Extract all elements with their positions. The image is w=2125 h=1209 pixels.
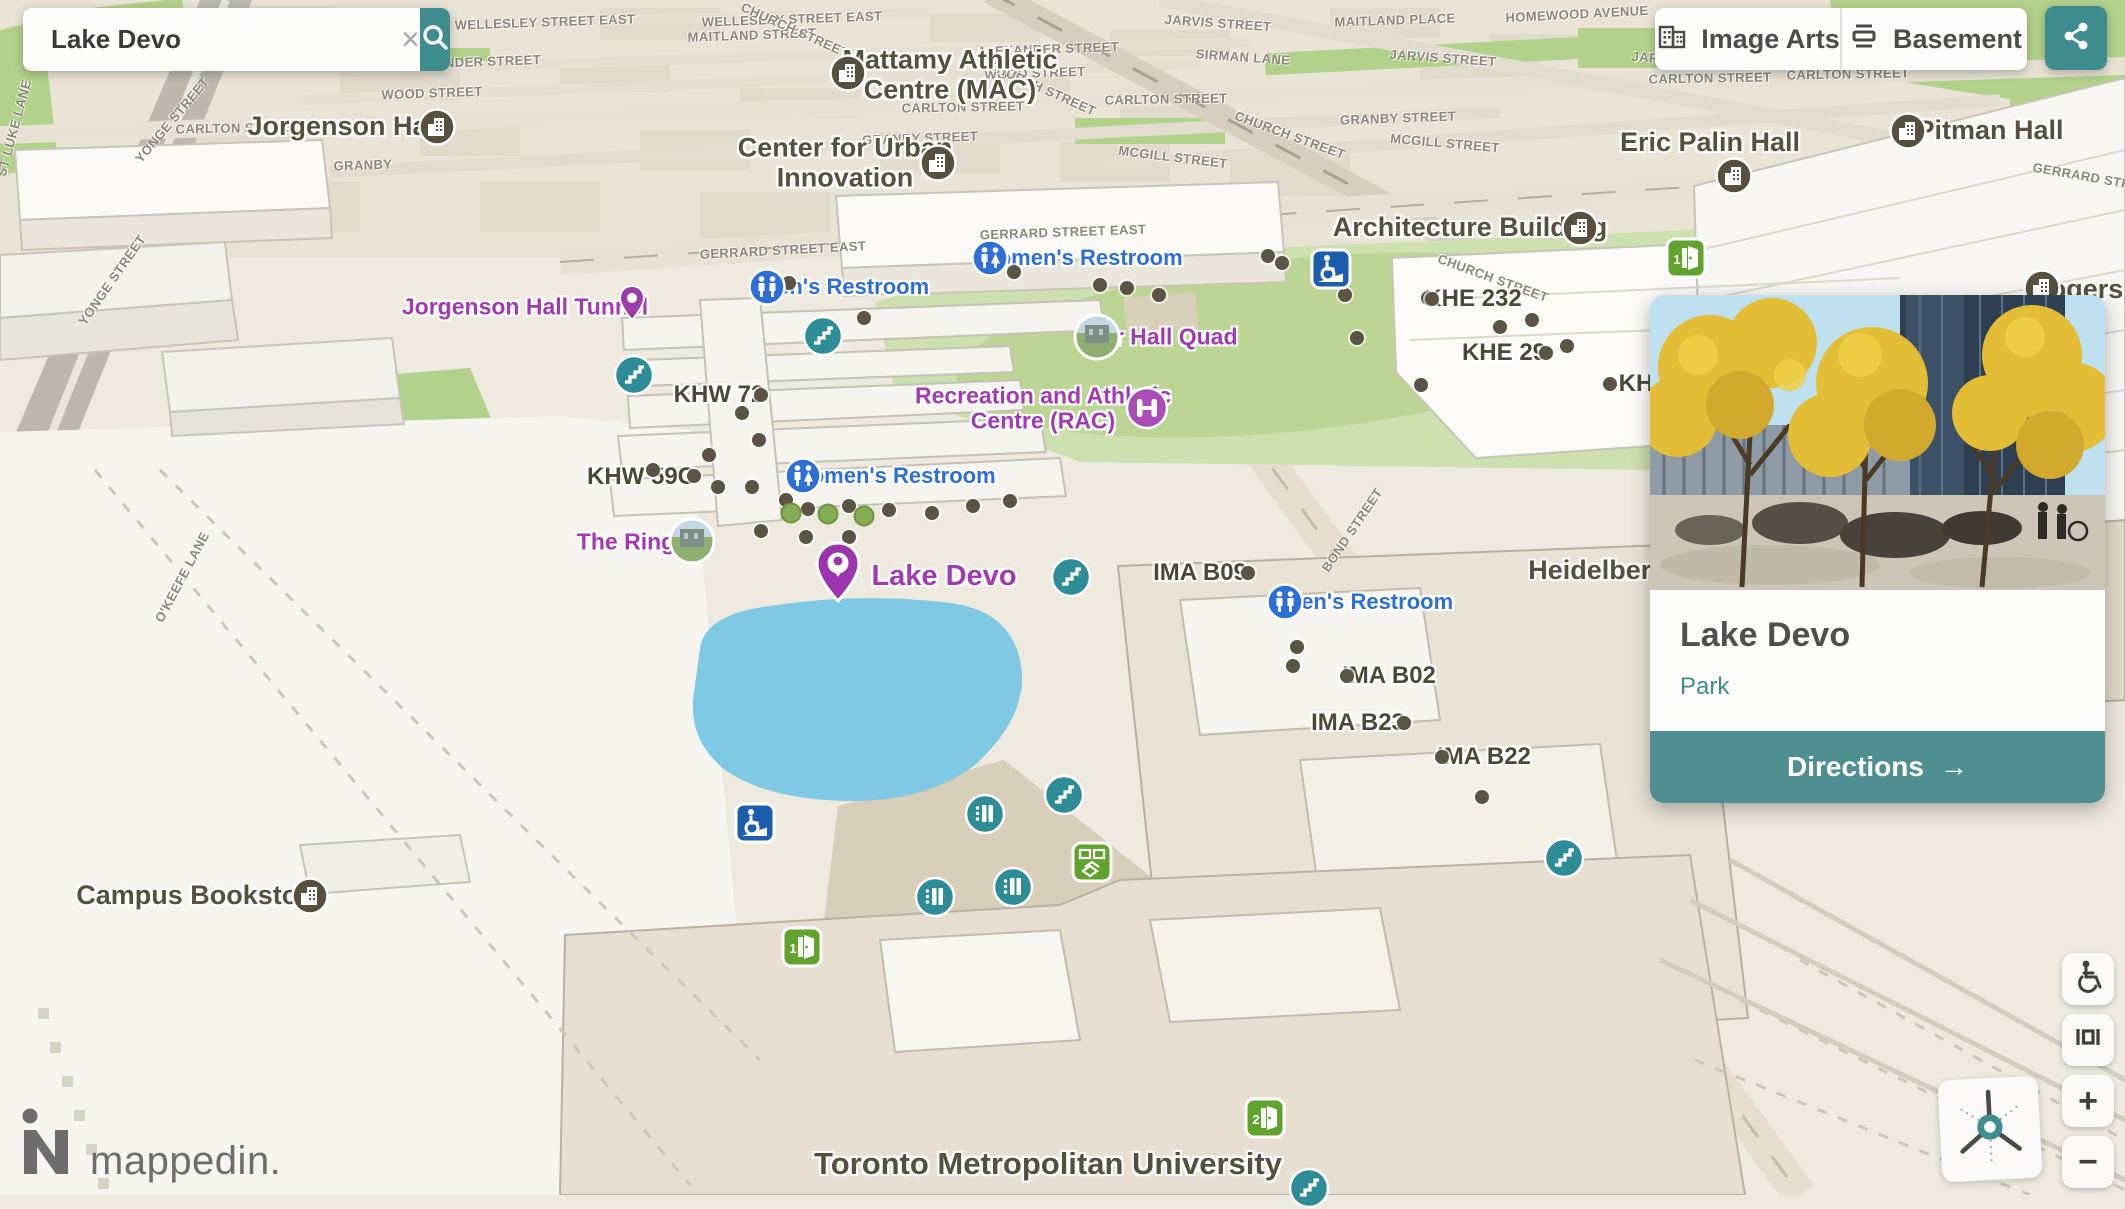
building-outline-icon xyxy=(1655,19,1689,60)
restroom-women-icon[interactable] xyxy=(971,239,1009,277)
poi-dot xyxy=(1425,292,1439,306)
poi-dot xyxy=(857,311,871,325)
poi-dot xyxy=(1493,320,1507,334)
street-label: GERRARD STREET EAST xyxy=(699,238,866,262)
svg-text:1: 1 xyxy=(1673,252,1680,267)
street-label: SIRMAN LANE xyxy=(1195,46,1291,68)
mappedin-pin-icon xyxy=(20,1108,76,1179)
poi-dot xyxy=(1350,331,1364,345)
poi-dot xyxy=(882,503,896,517)
street-label: MAITLAND PLACE xyxy=(1334,10,1456,29)
card-title: Lake Devo xyxy=(1680,616,2075,655)
svg-text:1: 1 xyxy=(789,941,796,956)
building-icon[interactable] xyxy=(919,144,957,182)
directions-button[interactable]: Directions → xyxy=(1650,731,2105,803)
elevator-icon[interactable] xyxy=(964,793,1006,835)
compass-3d-gizmo[interactable] xyxy=(1937,1075,2042,1182)
door-icon[interactable]: 2 xyxy=(1244,1097,1286,1139)
stairs-icon[interactable] xyxy=(1050,556,1092,598)
poi-dot xyxy=(1093,278,1107,292)
building-icon[interactable] xyxy=(1889,112,1927,150)
pin-small-icon[interactable] xyxy=(617,284,647,322)
building-icon[interactable] xyxy=(291,877,329,915)
poi-dot xyxy=(799,530,813,544)
recenter-fit-button[interactable] xyxy=(2062,1014,2114,1066)
poi-dot xyxy=(966,499,980,513)
building-label[interactable]: Pitman Hall xyxy=(1916,116,2063,146)
svg-text:2: 2 xyxy=(1252,1112,1259,1127)
room-label[interactable]: KHW 72 xyxy=(674,381,765,409)
poi-dot xyxy=(687,469,701,483)
stairs-icon[interactable] xyxy=(613,354,655,396)
ramp-icon[interactable] xyxy=(734,802,776,844)
building-label[interactable]: Toronto Metropolitan University xyxy=(814,1147,1282,1181)
mappedin-wordmark: mappedin. xyxy=(90,1143,281,1179)
tree-icon xyxy=(854,506,875,527)
tree-icon xyxy=(818,504,839,525)
restroom-men-icon[interactable] xyxy=(1266,583,1304,621)
ramp-icon[interactable] xyxy=(1310,248,1352,290)
clear-search-icon[interactable]: × xyxy=(401,8,420,71)
building-icon[interactable] xyxy=(829,54,867,92)
street-label: CARLTON STREET xyxy=(1104,90,1227,107)
street-label: BOND STREET xyxy=(1318,485,1385,574)
poi-dot xyxy=(1286,659,1300,673)
street-label: ST LUKE LANE xyxy=(0,78,34,178)
mappedin-logo[interactable]: mappedin. xyxy=(20,1108,281,1179)
minus-icon: − xyxy=(2078,1145,2098,1179)
stairs-icon[interactable] xyxy=(1543,837,1585,879)
room-label[interactable]: IMA B02 xyxy=(1342,662,1436,690)
photo-icon[interactable] xyxy=(1071,311,1123,363)
search-bar: × xyxy=(23,8,450,71)
poi-dot xyxy=(1275,256,1289,270)
pin-large-icon[interactable] xyxy=(814,541,862,603)
poi-dot xyxy=(1539,346,1553,360)
accessibility-toggle-button[interactable] xyxy=(2062,953,2114,1005)
poi-dot xyxy=(1261,249,1275,263)
poi-dot xyxy=(1560,339,1574,353)
street-label: GRANBY xyxy=(333,156,392,173)
poi-dot xyxy=(711,480,725,494)
building-label[interactable]: Campus Bookstore xyxy=(76,881,324,911)
street-label: JARVIS STREET xyxy=(1164,12,1272,34)
poi-dot xyxy=(1435,750,1449,764)
poi-dot xyxy=(1414,378,1428,392)
tree-icon xyxy=(781,503,802,524)
zoom-in-button[interactable]: + xyxy=(2062,1075,2114,1127)
street-label: CHURCH STREET xyxy=(1233,108,1348,162)
location-photo xyxy=(1650,295,2105,590)
poi-dot xyxy=(1290,640,1304,654)
room-label[interactable]: IMA B09 xyxy=(1153,559,1247,587)
poi-dot xyxy=(1525,313,1539,327)
poi-dot xyxy=(754,524,768,538)
street-label: YONGE STREET xyxy=(132,74,212,165)
door-icon[interactable]: 1 xyxy=(1665,237,1707,279)
restroom-label[interactable]: Men's Restroom xyxy=(1283,589,1453,615)
image-arts-label: Image Arts xyxy=(1701,24,1840,55)
rac-icon[interactable] xyxy=(1125,386,1169,430)
poi-dot xyxy=(745,480,759,494)
building-label[interactable]: Eric Palin Hall xyxy=(1620,128,1800,158)
poi-special-icon[interactable] xyxy=(1071,841,1113,883)
poi-dot xyxy=(1152,288,1166,302)
fit-bounds-icon xyxy=(2071,1020,2105,1060)
street-label: O'KEEFE LANE xyxy=(152,529,212,625)
search-button[interactable] xyxy=(420,8,450,71)
location-detail-card: Lake Devo Park Directions → xyxy=(1650,295,2105,803)
poi-dot xyxy=(925,506,939,520)
poi-dot xyxy=(1340,669,1354,683)
building-label[interactable]: Jorgenson Hall xyxy=(247,112,442,142)
poi-dot xyxy=(754,388,768,402)
street-label: WELLESLEY STREET EAST xyxy=(454,11,635,32)
poi-dot xyxy=(735,406,749,420)
restroom-women-icon[interactable] xyxy=(784,457,822,495)
street-label: WOOD STREET xyxy=(381,84,483,103)
street-label: HOMEWOOD AVENUE xyxy=(1505,3,1649,25)
poi-dot xyxy=(1007,265,1021,279)
poi-dot xyxy=(752,433,766,447)
basement-label: Basement xyxy=(1893,24,2022,55)
poi-label[interactable]: The Ring xyxy=(577,529,675,554)
card-info: Lake Devo Park xyxy=(1650,590,2105,731)
poi-dot xyxy=(1338,288,1352,302)
share-icon xyxy=(2059,19,2093,58)
zoom-out-button[interactable]: − xyxy=(2062,1136,2114,1188)
street-label: JARVIS STREET xyxy=(1389,47,1497,69)
elevator-icon[interactable] xyxy=(914,876,956,918)
poi-dot xyxy=(1120,281,1134,295)
share-button[interactable] xyxy=(2045,6,2107,70)
building-icon[interactable] xyxy=(418,108,456,146)
street-label: GRANBY STREET xyxy=(1340,108,1457,127)
arrow-right-icon: → xyxy=(1940,751,1968,783)
basement-floor-button[interactable]: Basement xyxy=(1842,8,2027,70)
street-label: GERRARD STREET xyxy=(2032,160,2125,197)
floor-level-icon xyxy=(1847,19,1881,60)
search-input[interactable] xyxy=(23,24,401,55)
building-label[interactable]: Heidelberg xyxy=(1528,556,1668,586)
wheelchair-icon xyxy=(2070,958,2106,1000)
poi-dot xyxy=(1397,716,1411,730)
street-label: MCGILL STREET xyxy=(1390,131,1501,156)
elevator-icon[interactable] xyxy=(992,866,1034,908)
plus-icon: + xyxy=(2078,1084,2098,1118)
poi-dot xyxy=(1241,566,1255,580)
stairs-icon[interactable] xyxy=(1043,774,1085,816)
building-label[interactable]: Mattamy AthleticCentre (MAC) xyxy=(842,45,1057,104)
photo-icon[interactable] xyxy=(666,515,718,567)
stairs-icon[interactable] xyxy=(1288,1167,1330,1209)
stairs-icon[interactable] xyxy=(802,315,844,357)
door-icon[interactable]: 1 xyxy=(781,926,823,968)
street-label: MCGILL STREET xyxy=(1118,143,1229,171)
room-label[interactable]: IMA B22 xyxy=(1437,743,1531,771)
poi-label[interactable]: Jorgenson Hall Tunnel xyxy=(402,294,648,319)
room-label[interactable]: KH xyxy=(1619,370,1654,398)
building-icon[interactable] xyxy=(1561,209,1599,247)
poi-dot xyxy=(1003,494,1017,508)
poi-dot xyxy=(1475,790,1489,804)
building-icon[interactable] xyxy=(1715,157,1753,195)
toolbar: Image Arts Basement xyxy=(1655,8,2027,70)
directions-label: Directions xyxy=(1787,751,1924,783)
poi-dot xyxy=(646,463,660,477)
street-label: YONGE STREET xyxy=(75,232,148,328)
room-label[interactable]: KHW 59C xyxy=(587,463,695,491)
room-label[interactable]: KHE 29 xyxy=(1462,339,1546,367)
poi-dot xyxy=(801,502,815,516)
axis-gizmo-icon xyxy=(1942,1078,2039,1180)
search-icon xyxy=(420,22,450,57)
restroom-men-icon[interactable] xyxy=(748,268,786,306)
image-arts-button[interactable]: Image Arts xyxy=(1655,8,1840,70)
poi-label[interactable]: Lake Devo xyxy=(871,561,1016,593)
poi-dot xyxy=(1603,377,1617,391)
room-label[interactable]: IMA B23 xyxy=(1311,709,1405,737)
street-label: CARLTON STREET xyxy=(1648,69,1771,86)
card-category: Park xyxy=(1680,673,2075,701)
poi-dot xyxy=(702,448,716,462)
